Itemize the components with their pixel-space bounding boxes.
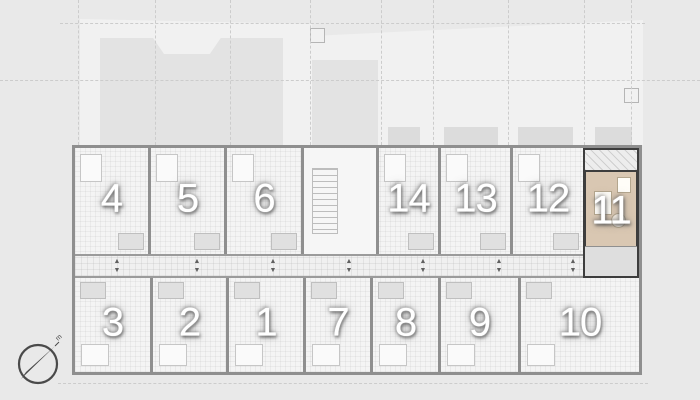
unit-14-label: 14 bbox=[387, 177, 430, 222]
door-swing-up-icon: ▲ bbox=[346, 257, 353, 266]
unit-12[interactable]: 12 bbox=[513, 148, 583, 254]
floor-plan-page: 4 5 6 14 13 12 11 ▲ bbox=[0, 0, 700, 400]
reference-line bbox=[508, 0, 509, 145]
door-swing-up-icon: ▲ bbox=[496, 257, 503, 266]
upper-terrace bbox=[595, 127, 632, 145]
door-swing-down-icon: ▼ bbox=[346, 266, 353, 275]
door-swing-down-icon: ▼ bbox=[270, 266, 277, 275]
door-swing-down-icon: ▼ bbox=[194, 266, 201, 275]
unit-14[interactable]: 14 bbox=[379, 148, 441, 254]
building-plan: 4 5 6 14 13 12 11 ▲ bbox=[72, 145, 642, 375]
reference-line bbox=[584, 0, 585, 145]
door-swing-icon: ▲ ▼ bbox=[343, 257, 355, 275]
unit-10-label: 10 bbox=[559, 301, 602, 346]
reference-line bbox=[230, 0, 231, 145]
door-swing-icon: ▲ ▼ bbox=[267, 257, 279, 275]
unit-4-label: 4 bbox=[101, 177, 122, 222]
reference-line bbox=[60, 23, 645, 24]
door-swing-icon: ▲ ▼ bbox=[191, 257, 203, 275]
stairs-icon bbox=[312, 168, 338, 234]
unit-3-label: 3 bbox=[102, 301, 123, 346]
unit-11-label: 11 bbox=[591, 189, 631, 234]
door-swing-down-icon: ▼ bbox=[420, 266, 427, 275]
unit-7[interactable]: 7 bbox=[306, 278, 373, 372]
unit-1[interactable]: 1 bbox=[229, 278, 306, 372]
reference-line bbox=[78, 0, 79, 145]
unit-3[interactable]: 3 bbox=[75, 278, 153, 372]
bathroom bbox=[585, 246, 637, 276]
north-arrow-icon: m bbox=[12, 332, 68, 390]
unit-4[interactable]: 4 bbox=[75, 148, 151, 254]
unit-5-label: 5 bbox=[177, 177, 198, 222]
door-swing-icon: ▲ ▼ bbox=[111, 257, 123, 275]
reference-line bbox=[58, 383, 648, 384]
unit-6[interactable]: 6 bbox=[227, 148, 301, 254]
unit-6-label: 6 bbox=[253, 177, 274, 222]
unit-9-label: 9 bbox=[469, 301, 490, 346]
upper-terrace bbox=[518, 127, 573, 145]
unit-2-label: 2 bbox=[179, 301, 200, 346]
door-swing-up-icon: ▲ bbox=[194, 257, 201, 266]
upper-terrace bbox=[388, 127, 420, 145]
reference-line bbox=[631, 0, 632, 145]
unit-1-label: 1 bbox=[255, 301, 276, 346]
upper-floor-footprint bbox=[312, 60, 378, 145]
unit-8-label: 8 bbox=[395, 301, 416, 346]
door-swing-icon: ▲ ▼ bbox=[493, 257, 505, 275]
door-swing-up-icon: ▲ bbox=[570, 257, 577, 266]
reference-line bbox=[310, 0, 311, 145]
reference-line bbox=[381, 0, 382, 145]
adjacent-building-footprint bbox=[100, 38, 283, 145]
reference-line bbox=[155, 0, 156, 145]
unit-13[interactable]: 13 bbox=[441, 148, 513, 254]
site-marker-square bbox=[310, 28, 325, 43]
reference-line bbox=[433, 0, 434, 145]
reference-line bbox=[0, 80, 700, 81]
balcony bbox=[585, 150, 637, 172]
unit-7-label: 7 bbox=[327, 301, 348, 346]
corridor: ▲ ▼ ▲ ▼ ▲ ▼ ▲ ▼ ▲ ▼ ▲ ▼ bbox=[75, 254, 583, 278]
door-swing-down-icon: ▼ bbox=[496, 266, 503, 275]
door-swing-up-icon: ▲ bbox=[420, 257, 427, 266]
unit-11[interactable]: 11 bbox=[583, 148, 639, 278]
compass-label: m bbox=[55, 333, 64, 342]
door-swing-up-icon: ▲ bbox=[270, 257, 277, 266]
door-swing-icon: ▲ ▼ bbox=[567, 257, 579, 275]
unit-10[interactable]: 10 bbox=[521, 278, 639, 372]
door-swing-down-icon: ▼ bbox=[570, 266, 577, 275]
unit-2[interactable]: 2 bbox=[153, 278, 229, 372]
unit-8[interactable]: 8 bbox=[373, 278, 441, 372]
upper-terrace bbox=[444, 127, 498, 145]
unit-13-label: 13 bbox=[454, 177, 497, 222]
unit-12-label: 12 bbox=[527, 177, 570, 222]
door-swing-icon: ▲ ▼ bbox=[417, 257, 429, 275]
door-swing-up-icon: ▲ bbox=[114, 257, 121, 266]
unit-5[interactable]: 5 bbox=[151, 148, 227, 254]
unit-9[interactable]: 9 bbox=[441, 278, 521, 372]
stair-core bbox=[301, 148, 379, 254]
door-swing-down-icon: ▼ bbox=[114, 266, 121, 275]
